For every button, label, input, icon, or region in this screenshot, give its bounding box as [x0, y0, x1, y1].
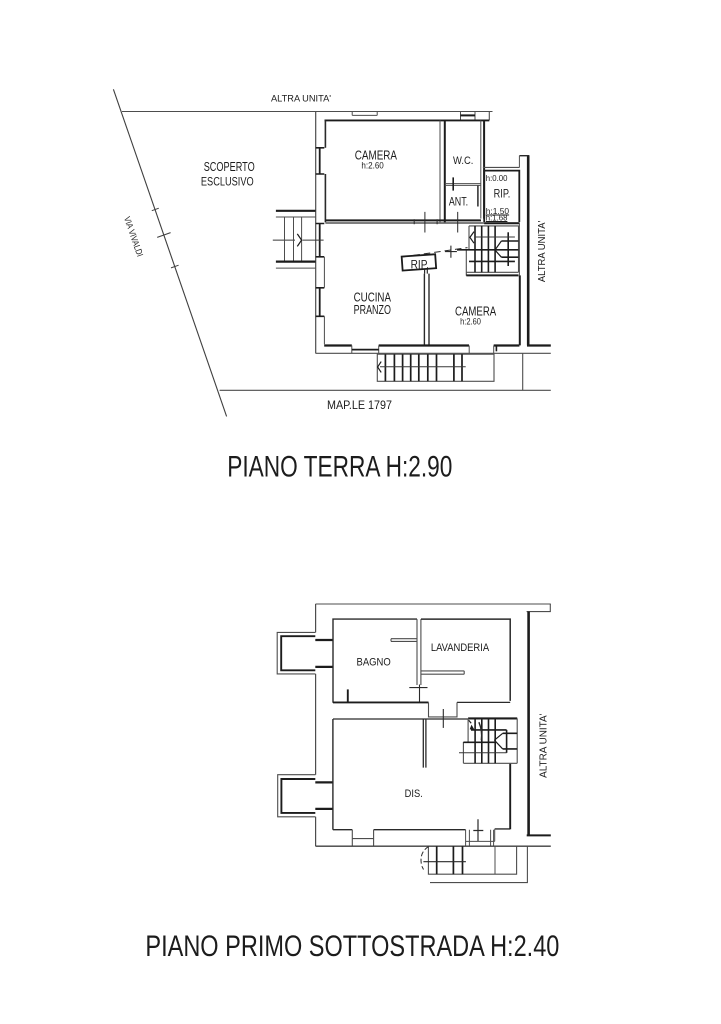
svg-text:LAVANDERIA: LAVANDERIA — [431, 642, 490, 654]
svg-text:PIANO TERRA H:2.90: PIANO TERRA H:2.90 — [227, 451, 452, 484]
svg-text:PIANO PRIMO SOTTOSTRADA H:2.40: PIANO PRIMO SOTTOSTRADA H:2.40 — [145, 930, 559, 963]
svg-text:h:0.00: h:0.00 — [486, 173, 508, 183]
svg-text:SCOPERTO: SCOPERTO — [204, 159, 255, 174]
svg-text:W.C.: W.C. — [453, 155, 473, 167]
svg-text:RIP.: RIP. — [494, 186, 511, 200]
svg-text:BAGNO: BAGNO — [357, 657, 391, 669]
svg-text:PRANZO: PRANZO — [354, 303, 391, 317]
svg-text:h:1.68: h:1.68 — [486, 213, 508, 222]
svg-text:h:2.60: h:2.60 — [361, 160, 383, 170]
svg-text:ALTRA UNITA': ALTRA UNITA' — [537, 221, 548, 283]
svg-text:ESCLUSIVO: ESCLUSIVO — [201, 175, 254, 189]
svg-text:RIP.: RIP. — [411, 259, 429, 271]
svg-text:DIS.: DIS. — [405, 788, 423, 800]
svg-text:ANT.: ANT. — [449, 194, 468, 208]
svg-text:ALTRA UNITA': ALTRA UNITA' — [271, 94, 331, 105]
svg-text:MAP.LE 1797: MAP.LE 1797 — [327, 398, 392, 412]
svg-text:h:2.60: h:2.60 — [460, 317, 481, 327]
svg-text:ALTRA UNITA': ALTRA UNITA' — [539, 713, 550, 777]
